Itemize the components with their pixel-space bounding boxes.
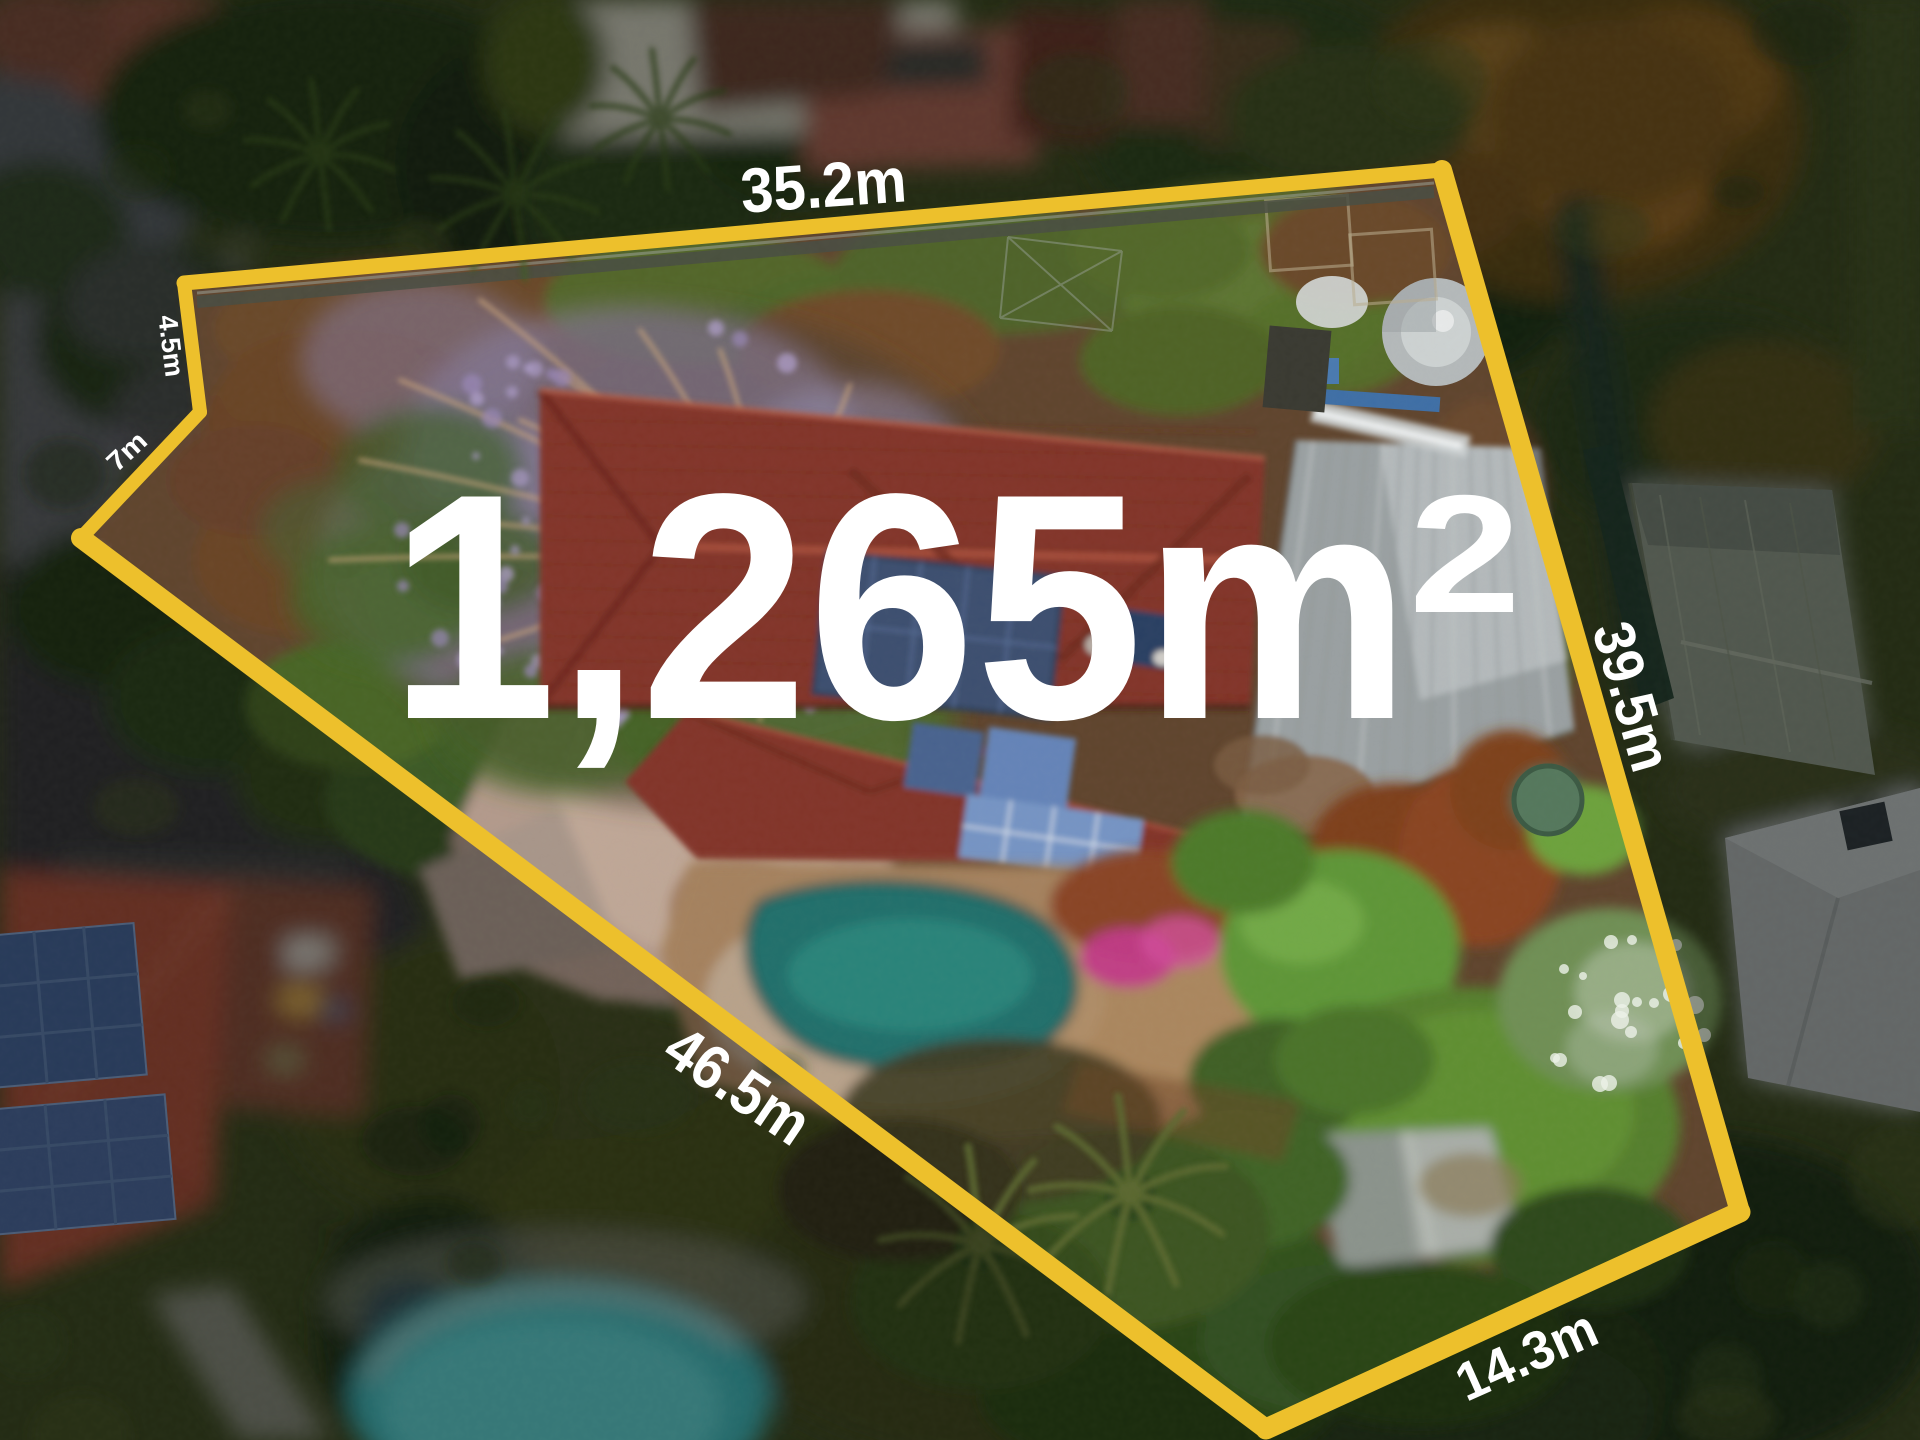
svg-text:1,265m: 1,265m	[389, 428, 1411, 787]
svg-text:2: 2	[1409, 460, 1521, 648]
svg-text:35.2m: 35.2m	[738, 145, 908, 226]
